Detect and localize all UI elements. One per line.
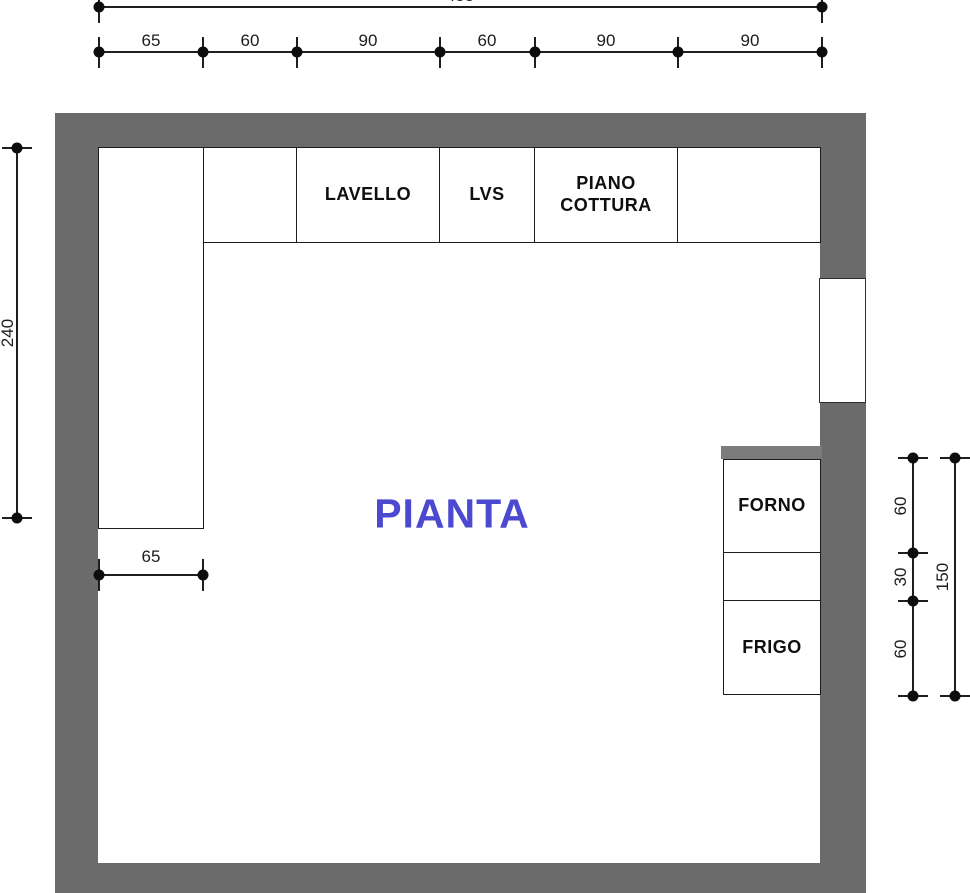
dishwasher-label: LVS [469, 184, 504, 206]
oven-box: FORNO [723, 459, 821, 553]
dim-label-segment: 90 [359, 31, 378, 51]
oven-label: FORNO [738, 495, 806, 517]
dim-marker-dot [908, 691, 919, 702]
dim-marker-dot [817, 2, 828, 13]
sink-label: LAVELLO [325, 184, 411, 206]
dim-line-left-column [99, 574, 203, 576]
fridge-box: FRIGO [723, 600, 821, 695]
dim-marker-dot [12, 143, 23, 154]
dim-marker-dot [435, 47, 446, 58]
kitchen-floor-plan: 455 65 60 90 60 90 90 240 65 60 30 60 15… [0, 0, 970, 893]
dim-line-right-total [954, 458, 956, 696]
dim-label-segment: 65 [142, 31, 161, 51]
sink-cabinet: LAVELLO [296, 147, 440, 243]
cooktop-label: PIANO COTTURA [556, 173, 656, 216]
dim-marker-dot [950, 691, 961, 702]
dim-line-right-segments [912, 458, 914, 696]
dim-marker-dot [673, 47, 684, 58]
dim-marker-dot [292, 47, 303, 58]
dim-marker-dot [908, 453, 919, 464]
dim-marker-dot [908, 548, 919, 559]
dim-marker-dot [94, 47, 105, 58]
dim-label-right-segment: 30 [891, 568, 911, 587]
dim-marker-dot [817, 47, 828, 58]
dim-marker-dot [950, 453, 961, 464]
dim-marker-dot [530, 47, 541, 58]
dim-marker-dot [12, 513, 23, 524]
plan-title: PIANTA [374, 491, 530, 538]
dim-label-right-segment: 60 [891, 640, 911, 659]
dim-label-left-column: 65 [142, 547, 161, 567]
cabinet-cell-empty-2 [677, 147, 821, 243]
dim-marker-dot [198, 47, 209, 58]
spacer-box [723, 552, 821, 601]
dim-label-segment: 90 [741, 31, 760, 51]
dim-label-top-total: 455 [446, 0, 474, 6]
dim-label-right-total: 150 [933, 563, 953, 591]
dim-marker-dot [908, 596, 919, 607]
fridge-label: FRIGO [742, 637, 802, 659]
dim-label-segment: 90 [597, 31, 616, 51]
cooktop-cabinet: PIANO COTTURA [534, 147, 678, 243]
dim-label-right-segment: 60 [891, 497, 911, 516]
dim-label-left-wall: 240 [0, 319, 18, 347]
dim-line-top-total [99, 6, 822, 8]
dim-label-segment: 60 [241, 31, 260, 51]
dim-marker-dot [198, 570, 209, 581]
dim-marker-dot [94, 570, 105, 581]
dim-label-segment: 60 [478, 31, 497, 51]
counter-left-column [98, 147, 204, 529]
dishwasher-cabinet: LVS [439, 147, 535, 243]
cabinet-cell-empty-1 [203, 147, 297, 243]
counter-edge-bar [721, 446, 822, 459]
dim-marker-dot [94, 2, 105, 13]
window-opening [819, 278, 866, 403]
